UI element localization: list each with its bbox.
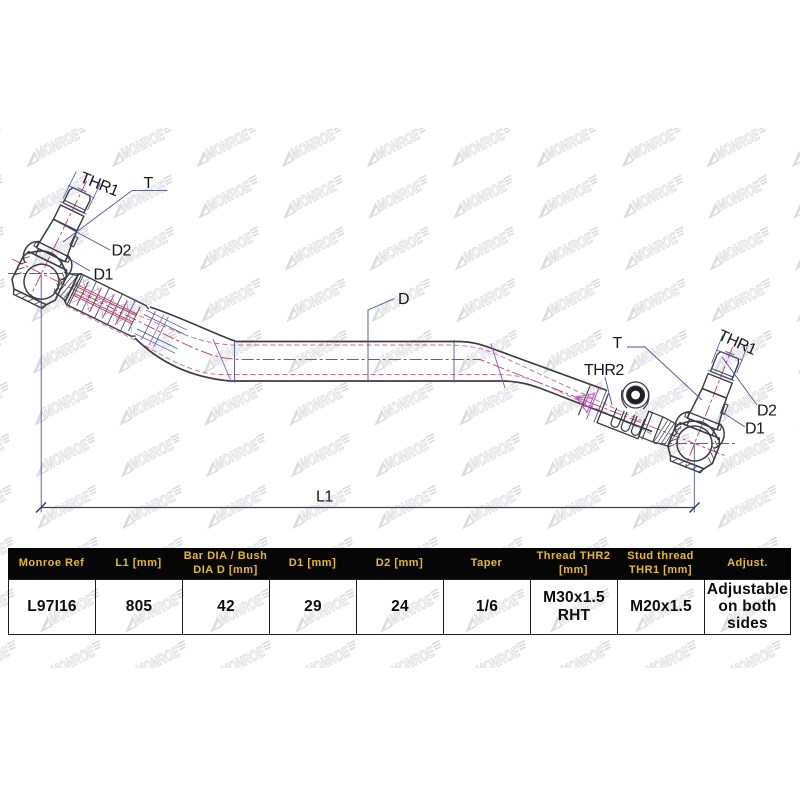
svg-text:D1: D1 — [94, 267, 114, 284]
svg-text:L1: L1 — [316, 489, 333, 506]
svg-text:THR2: THR2 — [584, 362, 624, 379]
svg-text:D2: D2 — [757, 403, 777, 420]
svg-text:D2: D2 — [112, 243, 132, 260]
svg-text:T: T — [144, 175, 154, 192]
svg-text:T: T — [613, 335, 623, 352]
svg-text:THR1: THR1 — [715, 327, 759, 359]
svg-text:THR1: THR1 — [78, 169, 122, 200]
svg-text:D1: D1 — [745, 421, 765, 438]
svg-text:D: D — [398, 291, 409, 308]
